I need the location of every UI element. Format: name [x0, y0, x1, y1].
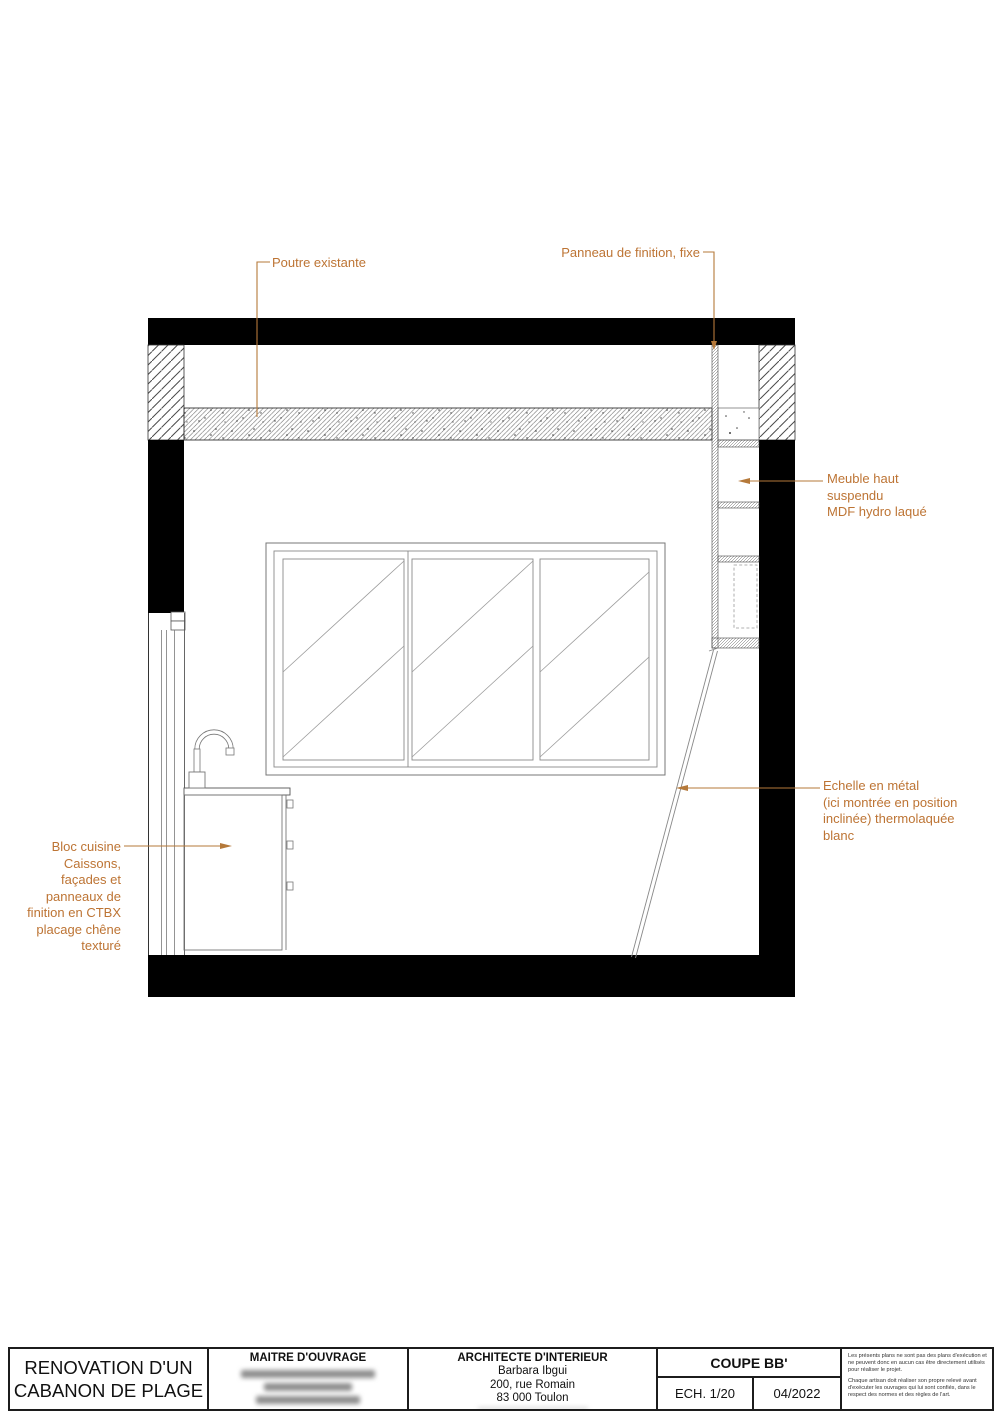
annotation-line: Bloc cuisine	[0, 839, 121, 856]
ladder	[632, 648, 719, 958]
annotation-line: Panneau de finition, fixe	[540, 245, 700, 262]
stamp-cell: COUPE BB' ECH. 1/20 04/2022	[658, 1349, 842, 1409]
beam-annotation: Poutre existante	[272, 255, 366, 272]
panel-annotation: Panneau de finition, fixe	[540, 245, 700, 262]
wall-cabinet	[712, 440, 759, 648]
architect-name: Barbara Ibgui	[498, 1365, 567, 1379]
annotation-line: suspendu	[827, 488, 927, 505]
legal-cell: Les présents plans ne sont pas des plans…	[842, 1349, 992, 1409]
section-drawing	[0, 0, 1000, 1414]
annotation-line: inclinée) thermolaquée	[823, 811, 957, 828]
project-title-line: RENOVATION D'UN	[24, 1356, 192, 1379]
finish-panel	[712, 345, 718, 648]
project-title-cell: RENOVATION D'UN CABANON DE PLAGE	[10, 1349, 209, 1409]
kitchen-block	[184, 732, 293, 950]
annotation-line: panneaux de	[0, 889, 121, 906]
stamp-bottom-row: ECH. 1/20 04/2022	[658, 1378, 840, 1409]
redacted-client-line	[264, 1383, 352, 1391]
client-cell: MAITRE D'OUVRAGE	[209, 1349, 409, 1409]
drawing-date: 04/2022	[754, 1378, 840, 1409]
annotation-line: blanc	[823, 828, 957, 845]
client-header: MAITRE D'OUVRAGE	[250, 1352, 366, 1365]
redacted-client-line	[241, 1370, 375, 1378]
title-block: RENOVATION D'UN CABANON DE PLAGE MAITRE …	[8, 1347, 994, 1411]
project-title-line: CABANON DE PLAGE	[14, 1379, 203, 1402]
annotation-line: texturé	[0, 938, 121, 955]
annotation-line: Echelle en métal	[823, 778, 957, 795]
faucet	[189, 732, 234, 788]
ladder-annotation: Echelle en métal (ici montrée en positio…	[823, 778, 957, 844]
redacted-architect-line	[478, 1408, 588, 1410]
annotation-line: Poutre existante	[272, 255, 366, 272]
annotation-line: placage chêne	[0, 922, 121, 939]
redacted-client-line	[256, 1396, 360, 1404]
disclaimer-paragraph: Chaque artisan doit réaliser son propre …	[848, 1378, 987, 1399]
annotation-line: Meuble haut	[827, 471, 927, 488]
architect-cell: ARCHITECTE D'INTERIEUR Barbara Ibgui 200…	[409, 1349, 658, 1409]
annotation-line: Caissons,	[0, 856, 121, 873]
architect-address: 83 000 Toulon	[496, 1392, 568, 1406]
beam	[184, 408, 759, 440]
annotation-line: façades et	[0, 872, 121, 889]
disclaimer-paragraph: Les présents plans ne sont pas des plans…	[848, 1353, 987, 1374]
annotation-line: (ici montrée en position	[823, 795, 957, 812]
drawing-title: COUPE BB'	[658, 1349, 840, 1378]
architect-address: 200, rue Romain	[490, 1379, 575, 1393]
architect-header: ARCHITECTE D'INTERIEUR	[457, 1352, 607, 1365]
window	[266, 543, 665, 775]
annotation-line: finition en CTBX	[0, 905, 121, 922]
annotation-line: MDF hydro laqué	[827, 504, 927, 521]
kitchen-annotation: Bloc cuisine Caissons, façades et pannea…	[0, 839, 121, 955]
cabinet-annotation: Meuble haut suspendu MDF hydro laqué	[827, 471, 927, 521]
drawing-scale: ECH. 1/20	[658, 1378, 754, 1409]
window-glass-marks	[283, 561, 649, 757]
drawing-sheet: Poutre existante Panneau de finition, fi…	[0, 0, 1000, 1414]
